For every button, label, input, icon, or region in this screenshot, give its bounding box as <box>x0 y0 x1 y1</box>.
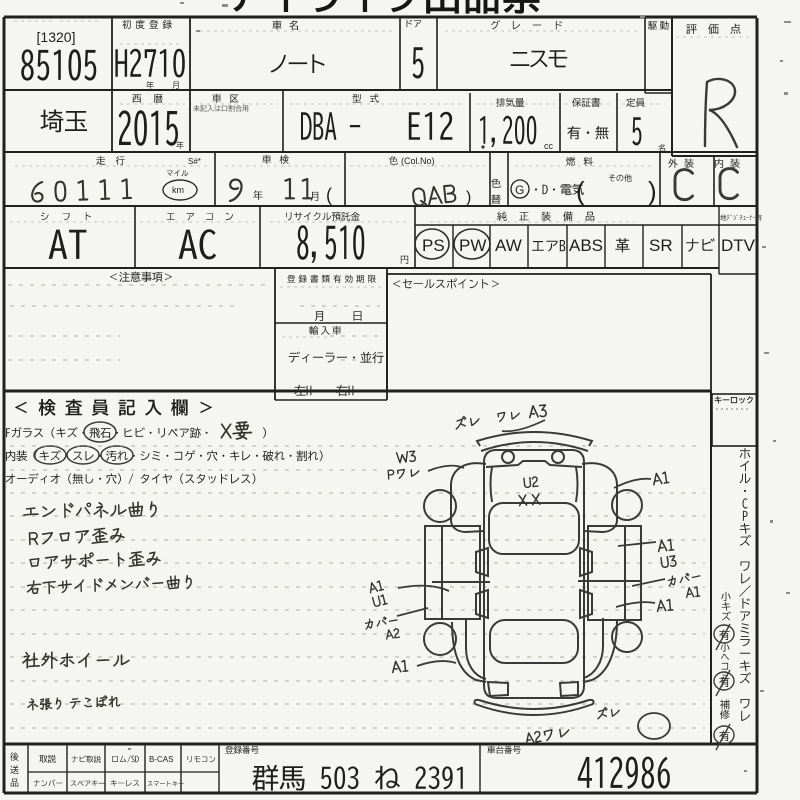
svg-text:PW: PW <box>459 236 486 255</box>
svg-text:SR: SR <box>649 236 673 255</box>
svg-text:): ) <box>466 189 471 206</box>
svg-text:PS: PS <box>422 236 445 255</box>
svg-text:AW: AW <box>495 236 522 255</box>
svg-text:S#*: S#* <box>188 157 201 166</box>
svg-text:G: G <box>515 183 524 197</box>
svg-text:ABS: ABS <box>569 236 603 255</box>
svg-text:(: ( <box>326 185 332 205</box>
svg-text:DTV: DTV <box>721 236 756 255</box>
svg-text:(Col.No): (Col.No) <box>401 156 435 166</box>
svg-text:km: km <box>172 185 184 195</box>
svg-text:): ) <box>648 176 657 206</box>
svg-text:[1320]: [1320] <box>37 29 76 45</box>
svg-text:B-CAS: B-CAS <box>149 755 173 764</box>
svg-text:(: ( <box>576 176 585 206</box>
svg-text:cc: cc <box>544 141 554 151</box>
